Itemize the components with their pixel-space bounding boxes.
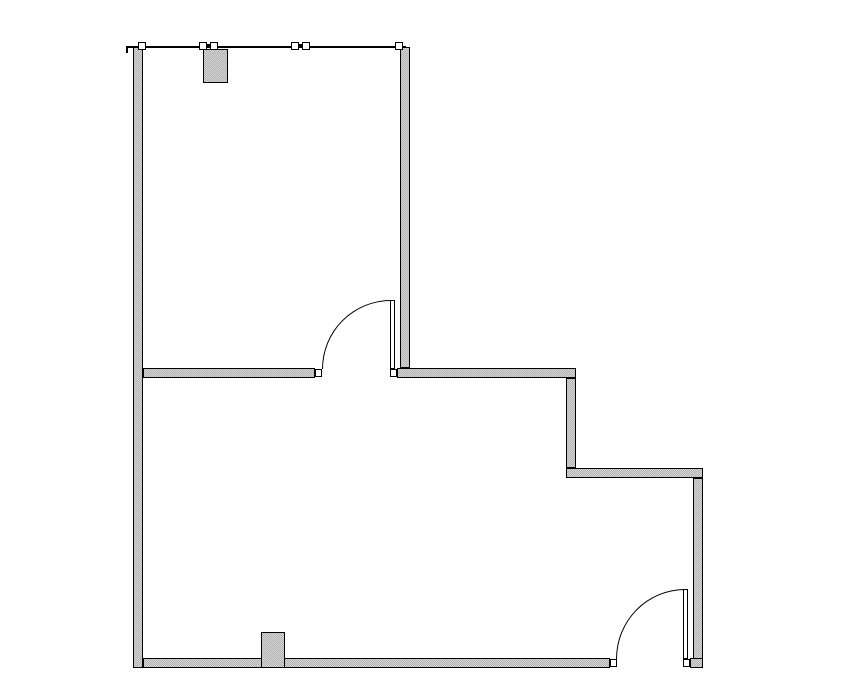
window-mullion-1 [395,42,403,50]
window-wall-end-tick [126,46,128,53]
window-layer [0,0,855,678]
window-mullion-5 [302,42,310,50]
window-mullion-3 [210,42,218,50]
window-mullion-2 [199,42,207,50]
window-wall-line [127,46,406,48]
window-mullion-0 [138,42,146,50]
window-mullion-4 [291,42,299,50]
floor-plan-canvas [0,0,855,678]
